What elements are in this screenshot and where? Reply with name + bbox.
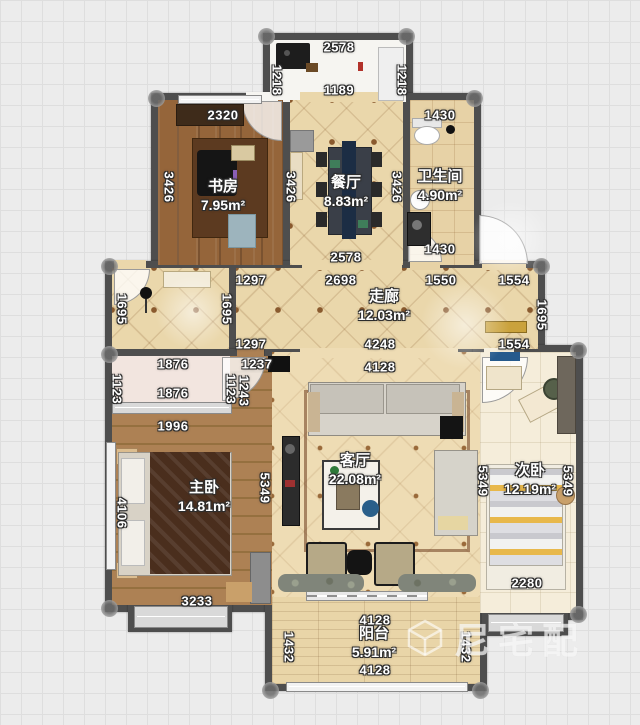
room-area-corridor: 12.03m² [358,307,410,325]
dimension-label: 1243 [237,376,252,407]
room-name-balcony: 阳台 [352,625,396,644]
dimension-label: 1189 [324,83,354,98]
cube-logo-icon [404,617,446,659]
room-label-master: 主卧 14.81m² [178,479,230,515]
fridge [290,130,314,152]
dimension-label: 2698 [326,273,357,288]
dimension-label: 1297 [236,337,267,352]
tv-cabinet-item [285,480,295,487]
room-label-dining: 餐厅 8.83m² [324,174,368,210]
dining-chair [371,212,382,227]
dimension-label: 1218 [270,65,285,96]
watermark-text: 尼宅配 [454,612,586,664]
floor-drain [446,125,455,134]
room-label-balcony: 阳台 5.91m² [352,625,396,661]
counter-item [306,63,318,72]
dimension-label: 4128 [360,613,391,628]
dimension-label: 2280 [512,576,543,591]
room-name-study: 书房 [201,178,245,197]
room-area-dining: 8.83m² [324,193,368,211]
chaise-pillow [438,516,468,530]
room-name-bathroom: 卫生间 [417,168,462,187]
dimension-label: 1430 [425,108,456,123]
dresser [250,552,271,604]
room-name-corridor: 走廊 [358,288,410,307]
dimension-label: 3426 [284,172,299,203]
room-label-corridor: 走廊 12.03m² [358,288,410,324]
corner-dot [533,258,550,275]
wardrobe [557,356,576,434]
dimension-label: 1430 [425,242,456,257]
rug [226,582,252,602]
dimension-label: 3426 [162,172,177,203]
dimension-label: 4106 [115,498,130,529]
dimension-label: 4128 [365,360,396,375]
dimension-label: 5349 [258,473,273,504]
dimension-label: 5349 [561,466,576,497]
floorplan-canvas: 书房 7.95m² 餐厅 8.83m² 卫生间 4.90m² 走廊 12.03m… [0,0,640,725]
corner-dot [148,90,165,107]
desk-second [486,366,522,390]
dimension-label: 2320 [208,108,239,123]
corner-dot [398,28,415,45]
sofa-cushion [310,384,384,414]
corner-dot [570,342,587,359]
room-area-balcony: 5.91m² [352,644,396,662]
tv-cabinet-clock [285,444,295,454]
room-name-living: 客厅 [329,452,381,471]
corner-dot [101,258,118,275]
washer-door [412,220,422,230]
corner-dot [466,90,483,107]
bay-window-master-south-sill [134,606,228,628]
dimension-label: 1876 [158,386,189,401]
tea-table-round [347,550,372,575]
dimension-label: 1218 [395,65,410,96]
dimension-label: 1123 [110,374,125,404]
placemat [330,160,340,168]
dimension-label: 1554 [499,337,530,352]
master-bay-window-sill [112,402,232,414]
sofa-cushion [386,384,460,414]
laptop [231,145,255,161]
watermark: 尼宅配 [404,612,586,664]
dimension-label: 3233 [182,594,213,609]
room-label-study: 书房 7.95m² [201,178,245,214]
room-name-dining: 餐厅 [324,174,368,193]
dimension-label: 4248 [365,337,396,352]
dimension-label: 2578 [331,250,362,265]
dimension-label: 1695 [115,294,130,325]
dimension-label: 2578 [324,40,355,55]
placemat [358,220,368,228]
floor-mat [228,214,256,248]
corner-dot [101,346,118,363]
blue-bowl [362,500,379,517]
dimension-label: 3426 [390,172,405,203]
room-area-study: 7.95m² [201,197,245,215]
toilet [414,126,440,145]
room-area-bathroom: 4.90m² [417,187,462,205]
room-area-master: 14.81m² [178,498,230,516]
floor-lamp-pole [145,299,147,313]
room-area-second: 12.19m² [504,481,556,499]
dimension-label: 1554 [499,273,530,288]
room-area-living: 22.08m² [329,471,381,489]
dimension-label: 1432 [282,632,297,663]
sofa-armrest [308,392,320,432]
dimension-label: 1695 [220,294,235,325]
floor-lamp [140,287,152,299]
dimension-label: 1695 [535,300,550,331]
sliding-door-balcony [306,591,428,601]
window-balcony-south [286,682,468,692]
stove-burner [284,50,290,56]
light-glow [420,280,510,370]
dimension-label: 1876 [158,357,189,372]
dimension-label: 1297 [236,273,267,288]
side-table-black [440,416,463,439]
dining-chair [371,152,382,167]
gas-valve-mark [358,62,363,71]
room-label-living: 客厅 22.08m² [329,452,381,488]
corner-dot [472,682,489,699]
corner-dot [258,28,275,45]
window-study-north [178,95,262,104]
dimension-label: 4128 [360,663,391,678]
room-name-second: 次卧 [504,462,556,481]
dimension-label: 1550 [426,273,457,288]
dimension-label: 5349 [476,466,491,497]
dimension-label: 1237 [242,357,273,372]
plant-row [278,574,364,592]
dining-chair [316,152,327,167]
corner-dot [262,682,279,699]
room-label-second: 次卧 12.19m² [504,462,556,498]
dining-chair [371,182,382,197]
corner-dot [101,600,118,617]
room-label-bathroom: 卫生间 4.90m² [417,168,462,204]
dining-chair [316,212,327,227]
plant-row [398,574,476,592]
dimension-label: 1996 [158,419,189,434]
room-name-master: 主卧 [178,479,230,498]
